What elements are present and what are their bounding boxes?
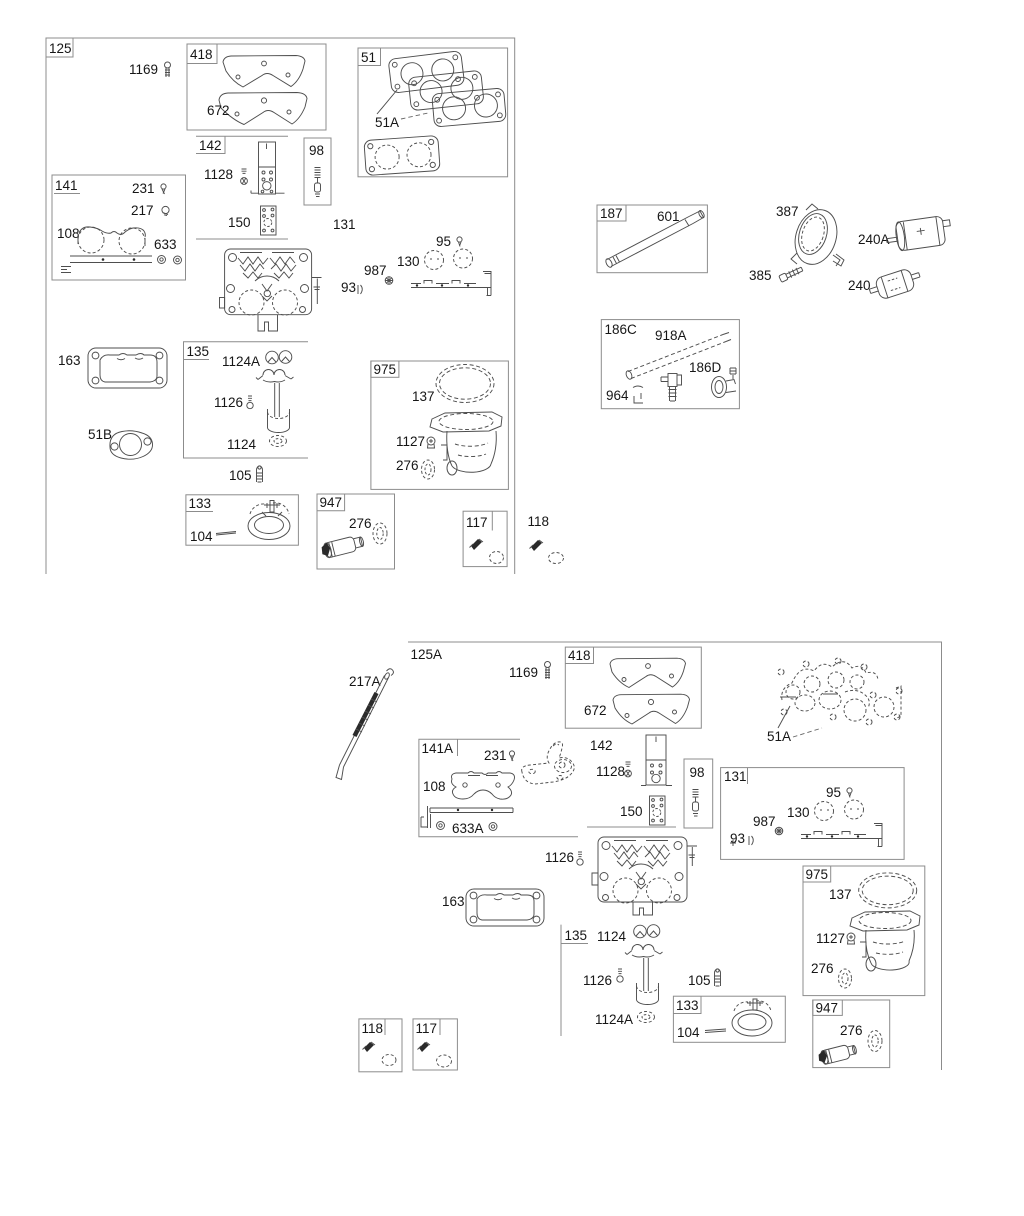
svg-text:186C: 186C (605, 322, 638, 337)
svg-text:1124: 1124 (597, 929, 627, 944)
svg-text:125A: 125A (411, 647, 443, 662)
svg-text:276: 276 (349, 516, 372, 531)
svg-text:93: 93 (341, 280, 356, 295)
svg-text:131: 131 (333, 217, 356, 232)
svg-text:947: 947 (816, 1001, 839, 1016)
svg-text:163: 163 (58, 353, 81, 368)
svg-text:187: 187 (600, 206, 623, 221)
svg-text:51A: 51A (767, 729, 791, 744)
svg-text:1126: 1126 (583, 973, 612, 988)
svg-text:672: 672 (207, 103, 230, 118)
svg-text:418: 418 (568, 648, 591, 663)
svg-text:163: 163 (442, 894, 465, 909)
svg-text:137: 137 (412, 389, 435, 404)
svg-text:1126: 1126 (214, 395, 243, 410)
svg-text:975: 975 (806, 867, 829, 882)
svg-text:1124A: 1124A (222, 354, 260, 369)
svg-text:240: 240 (848, 278, 871, 293)
svg-text:118: 118 (528, 514, 550, 529)
svg-text:672: 672 (584, 703, 607, 718)
svg-text:217A: 217A (349, 674, 381, 689)
svg-text:95: 95 (436, 234, 451, 249)
svg-text:987: 987 (364, 263, 387, 278)
svg-text:918A: 918A (655, 328, 687, 343)
svg-text:1127: 1127 (816, 931, 845, 946)
svg-text:1127: 1127 (396, 434, 425, 449)
svg-text:51B: 51B (88, 427, 112, 442)
svg-text:1169: 1169 (509, 665, 538, 680)
svg-text:240A: 240A (858, 232, 890, 247)
svg-text:975: 975 (374, 362, 397, 377)
svg-text:231: 231 (132, 181, 155, 196)
svg-text:231: 231 (484, 748, 507, 763)
svg-text:1128: 1128 (596, 764, 625, 779)
svg-text:105: 105 (229, 468, 252, 483)
svg-text:150: 150 (620, 804, 643, 819)
svg-text:108: 108 (57, 226, 80, 241)
svg-text:217: 217 (131, 203, 154, 218)
svg-text:104: 104 (677, 1025, 700, 1040)
svg-text:133: 133 (676, 998, 699, 1013)
svg-text:276: 276 (396, 458, 419, 473)
svg-text:51A: 51A (375, 115, 399, 130)
svg-text:142: 142 (199, 138, 222, 153)
svg-text:95: 95 (826, 785, 841, 800)
svg-text:118: 118 (362, 1021, 384, 1036)
svg-text:135: 135 (187, 344, 210, 359)
svg-text:150: 150 (228, 215, 251, 230)
svg-text:142: 142 (590, 738, 613, 753)
svg-text:1128: 1128 (204, 167, 233, 182)
svg-text:633: 633 (154, 237, 177, 252)
svg-text:104: 104 (190, 529, 213, 544)
svg-text:1124: 1124 (227, 437, 257, 452)
svg-text:633A: 633A (452, 821, 484, 836)
svg-text:125: 125 (49, 41, 72, 56)
svg-text:98: 98 (690, 765, 705, 780)
svg-text:137: 137 (829, 887, 852, 902)
svg-text:135: 135 (565, 928, 588, 943)
svg-text:1126: 1126 (545, 850, 574, 865)
svg-text:133: 133 (189, 496, 212, 511)
svg-text:108: 108 (423, 779, 446, 794)
svg-text:117: 117 (416, 1021, 438, 1036)
svg-text:98: 98 (309, 143, 324, 158)
svg-text:601: 601 (657, 209, 680, 224)
svg-text:141A: 141A (422, 741, 454, 756)
svg-text:105: 105 (688, 973, 711, 988)
svg-text:276: 276 (811, 961, 834, 976)
svg-text:93: 93 (730, 831, 745, 846)
svg-text:1124A: 1124A (595, 1012, 633, 1027)
svg-text:987: 987 (753, 814, 776, 829)
svg-text:51: 51 (361, 50, 376, 65)
svg-text:276: 276 (840, 1023, 863, 1038)
svg-text:387: 387 (776, 204, 799, 219)
svg-text:130: 130 (787, 805, 810, 820)
svg-text:947: 947 (320, 495, 343, 510)
svg-text:130: 130 (397, 254, 420, 269)
svg-text:141: 141 (55, 178, 78, 193)
svg-text:418: 418 (190, 47, 213, 62)
svg-text:131: 131 (724, 769, 747, 784)
svg-text:385: 385 (749, 268, 772, 283)
svg-text:964: 964 (606, 388, 629, 403)
svg-text:186D: 186D (689, 360, 722, 375)
svg-text:1169: 1169 (129, 62, 158, 77)
svg-text:117: 117 (466, 515, 488, 530)
